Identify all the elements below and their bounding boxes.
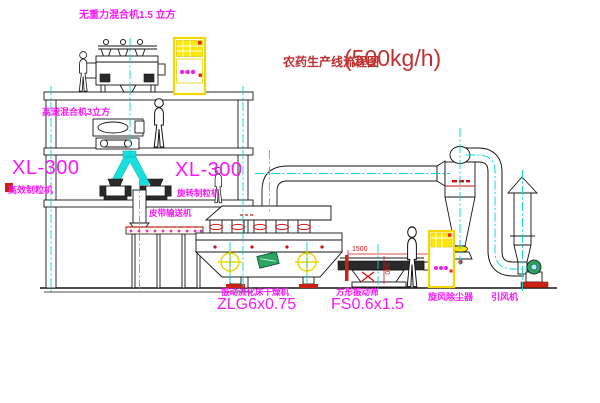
label-screen-model: FS0.6x1.5 — [331, 297, 404, 313]
high-speed-mixer — [93, 119, 144, 149]
control-cabinet-top — [174, 38, 205, 94]
ground-line — [40, 288, 557, 292]
label-granulator-right-model: XL-300 — [175, 160, 243, 180]
granulator-left — [100, 179, 131, 200]
process-flow-diagram: 无重力混合机1.5 立方 农药生产线流程图 (500kg/h) 高速混合机3立方… — [0, 0, 600, 403]
label-gravity-mixer: 无重力混合机1.5 立方 — [79, 11, 176, 21]
diagram-title-capacity: (500kg/h) — [344, 45, 441, 72]
dimension-screen-length: 1500 — [352, 246, 368, 253]
label-belt-conveyor: 皮带输送机 — [149, 209, 192, 218]
person-ground — [407, 227, 417, 287]
gravity-free-mixer — [84, 39, 165, 92]
label-granulator-left-name: 高效制粒机 — [8, 186, 53, 195]
label-fan: 引风机 — [491, 293, 518, 302]
label-granulator-left-model: XL-300 — [12, 158, 80, 178]
label-high-speed-mixer: 高速混合机3立方 — [42, 108, 110, 117]
control-cabinet-right — [429, 231, 454, 287]
person-second-floor — [154, 99, 164, 147]
label-granulator-right-name: 旋转制粒机 — [177, 189, 220, 198]
dimension-screen-height: 540 — [383, 263, 390, 275]
label-dryer-model: ZLG6x0.75 — [217, 297, 296, 313]
belt-conveyor — [126, 227, 203, 234]
person-roof — [79, 52, 87, 92]
label-cyclone: 旋风除尘器 — [428, 293, 473, 302]
